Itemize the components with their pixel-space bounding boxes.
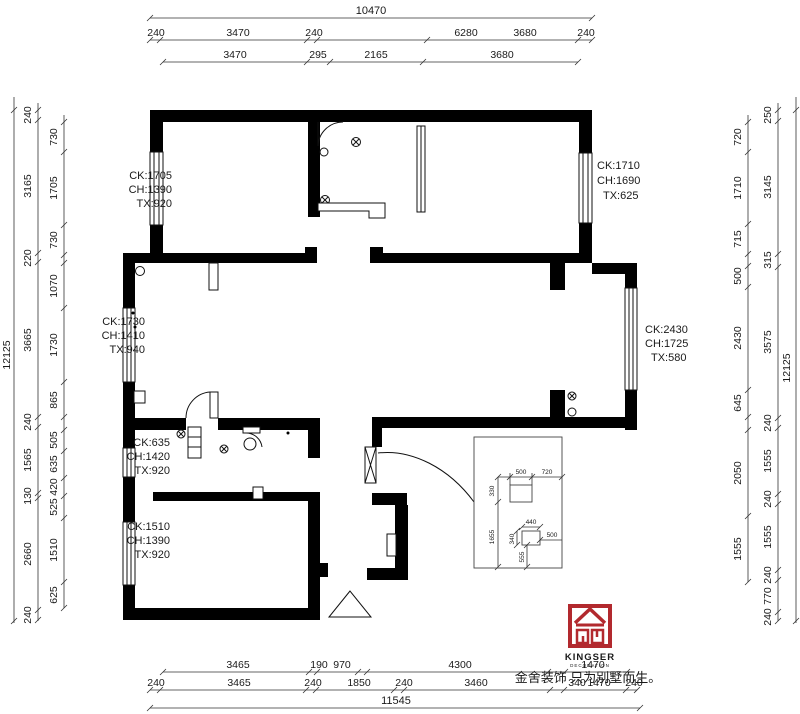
inset-dim: 555 — [519, 551, 526, 562]
kingser-logo-emblem — [570, 606, 610, 646]
dim-label: 3465 — [227, 677, 251, 689]
window-spec: TX:920 — [137, 198, 172, 210]
wall — [625, 266, 637, 290]
dim-label: 500 — [732, 267, 744, 285]
dim-label: 1705 — [48, 176, 60, 200]
window-spec: CK:2430 — [645, 324, 688, 336]
dim-label: 720 — [732, 128, 744, 146]
toilet — [243, 427, 262, 450]
drawing-sheet: KINGSER DECORATION 金舍装饰 只为别墅而生。 10470240… — [0, 0, 800, 714]
dim-label: 1710 — [732, 176, 744, 200]
inset-dim: 500 — [547, 532, 558, 539]
dim-label: 12125 — [781, 353, 793, 382]
dim-label: 1070 — [48, 274, 60, 298]
wall — [153, 492, 320, 501]
door-swing — [186, 392, 218, 418]
dim-label: 240 — [304, 677, 322, 689]
dim-label: 240 — [577, 27, 595, 39]
entry-triangle — [329, 591, 371, 617]
wall — [579, 122, 592, 153]
dim-label: 2165 — [364, 49, 388, 61]
dim-label: 190 — [310, 659, 328, 671]
wall — [372, 493, 407, 505]
dim-label: 240 — [22, 606, 34, 624]
window-spec: CK:1730 — [102, 316, 145, 328]
dim-label: 645 — [732, 394, 744, 412]
inset-dim: 340 — [509, 533, 516, 544]
floor-plan-canvas: KINGSER DECORATION 金舍装饰 只为别墅而生。 10470240… — [0, 0, 800, 714]
dim-label: 420 — [48, 478, 60, 496]
window — [625, 288, 637, 390]
dim-label: 3680 — [513, 27, 537, 39]
wall — [123, 253, 317, 263]
dim-label: 3465 — [226, 659, 250, 671]
drain-symbol — [177, 430, 185, 438]
dim-label: 730 — [48, 128, 60, 146]
dim-label: 1730 — [48, 333, 60, 357]
dim-label: 10470 — [356, 5, 387, 17]
window-spec: CK:1510 — [127, 521, 170, 533]
window-spec: CH:1390 — [127, 535, 170, 547]
dim-label: 240 — [762, 490, 774, 508]
dim-label: 2050 — [732, 461, 744, 485]
window — [579, 153, 592, 223]
outlet-box — [134, 391, 145, 403]
socket-dot — [132, 312, 135, 315]
dim-label: 3165 — [22, 174, 34, 198]
dim-label: 770 — [762, 587, 774, 605]
door-swing — [318, 122, 343, 146]
dim-label: 220 — [22, 249, 34, 267]
window-spec: CH:1410 — [102, 330, 145, 342]
dim-label: 240 — [22, 413, 34, 431]
wall — [218, 418, 320, 430]
dim-label: 240 — [625, 677, 643, 689]
dim-label: 315 — [762, 251, 774, 269]
dim-label: 340 — [568, 677, 586, 689]
dim-label: 1555 — [732, 537, 744, 561]
dim-label: 3470 — [223, 49, 247, 61]
window-spec: TX:920 — [135, 465, 170, 477]
dim-label: 12125 — [1, 340, 13, 369]
dim-label: 730 — [48, 231, 60, 249]
wall — [308, 492, 320, 620]
drain-symbol — [352, 138, 361, 147]
washing-machine — [188, 427, 201, 458]
dim-label: 525 — [48, 498, 60, 516]
panel-box — [387, 534, 396, 556]
dim-label: 970 — [333, 659, 351, 671]
wall — [372, 428, 382, 447]
window-spec: CH:1390 — [129, 184, 172, 196]
kitchen-counter — [318, 203, 385, 218]
wall-mark — [401, 112, 404, 115]
wall — [123, 253, 135, 308]
dim-label: 11545 — [381, 695, 411, 707]
dim-label: 1565 — [22, 448, 34, 472]
wall — [123, 608, 320, 620]
dim-label: 2430 — [732, 326, 744, 350]
inset-dim: 1655 — [489, 529, 496, 544]
dim-label: 2660 — [22, 542, 34, 566]
window-spec: CH:1725 — [645, 338, 688, 350]
dim-label: 1510 — [48, 538, 60, 562]
dim-label: 865 — [48, 391, 60, 409]
inset-dim: 720 — [542, 469, 553, 476]
dim-label: 240 — [762, 414, 774, 432]
window-spec: CH:1690 — [597, 175, 640, 187]
dim-label: 240 — [762, 566, 774, 584]
dim-label: 240 — [305, 27, 323, 39]
dim-label: 6280 — [454, 27, 478, 39]
wall — [550, 390, 565, 417]
wall — [370, 253, 592, 263]
wall — [367, 568, 408, 580]
window-spec: TX:940 — [110, 344, 145, 356]
dim-label: 3470 — [226, 27, 250, 39]
wall-mark — [419, 112, 422, 115]
wall — [305, 247, 317, 253]
dim-label: 3145 — [762, 175, 774, 199]
window-spec: TX:625 — [603, 190, 638, 202]
inset-dim: 500 — [516, 469, 527, 476]
dim-label: 1555 — [762, 449, 774, 473]
drain-symbol — [220, 445, 228, 453]
wall — [150, 110, 592, 122]
window-spec: CH:1420 — [127, 451, 170, 463]
dim-label: 3460 — [464, 677, 488, 689]
wall — [550, 263, 565, 290]
cabinet — [417, 126, 425, 212]
dim-label: 715 — [732, 230, 744, 248]
dim-label: 240 — [22, 106, 34, 124]
drain-symbol — [568, 392, 576, 400]
inset-frame — [474, 437, 562, 568]
window-spec: TX:580 — [651, 352, 686, 364]
dim-label: 1850 — [347, 677, 371, 689]
dim-label: 3575 — [762, 330, 774, 354]
logo: KINGSER DECORATION 金舍装饰 只为别墅而生。 — [515, 606, 662, 685]
wall — [123, 418, 186, 430]
dim-label: 295 — [309, 49, 327, 61]
wall — [123, 477, 135, 522]
dim-label: 250 — [762, 106, 774, 124]
window-spec: TX:920 — [135, 549, 170, 561]
pilaster — [209, 263, 218, 290]
wall — [372, 417, 637, 428]
plumbing-symbol — [320, 148, 328, 156]
plumbing-symbol — [136, 267, 145, 276]
wall — [370, 247, 383, 253]
inset-dim: 440 — [526, 519, 537, 526]
dim-label: 3680 — [490, 49, 514, 61]
window-spec: CK:1710 — [597, 160, 640, 172]
wall — [320, 563, 328, 577]
dim-label: 240 — [395, 677, 413, 689]
dim-label: 1555 — [762, 525, 774, 549]
wall — [308, 418, 320, 458]
socket-dot — [287, 432, 290, 435]
window-spec: CK:635 — [133, 437, 170, 449]
dim-label: 635 — [48, 455, 60, 473]
dim-label: 240 — [762, 608, 774, 626]
dim-label: 505 — [48, 431, 60, 449]
inset-dim: 330 — [489, 485, 496, 496]
dim-label: 1470 — [587, 677, 611, 689]
wall — [150, 122, 163, 152]
dim-label: 130 — [22, 487, 34, 505]
dim-label: 4300 — [448, 659, 472, 671]
dim-label: 625 — [48, 586, 60, 604]
dim-label: 3665 — [22, 328, 34, 352]
dim-label: 240 — [147, 27, 165, 39]
plumbing-symbol — [568, 408, 576, 416]
inset-opening — [510, 485, 532, 502]
detail-inset — [474, 437, 562, 568]
window-spec: CK:1705 — [129, 170, 172, 182]
dim-label: 1470 — [581, 659, 605, 671]
door-pivot — [253, 487, 263, 499]
dim-label: 240 — [147, 677, 165, 689]
